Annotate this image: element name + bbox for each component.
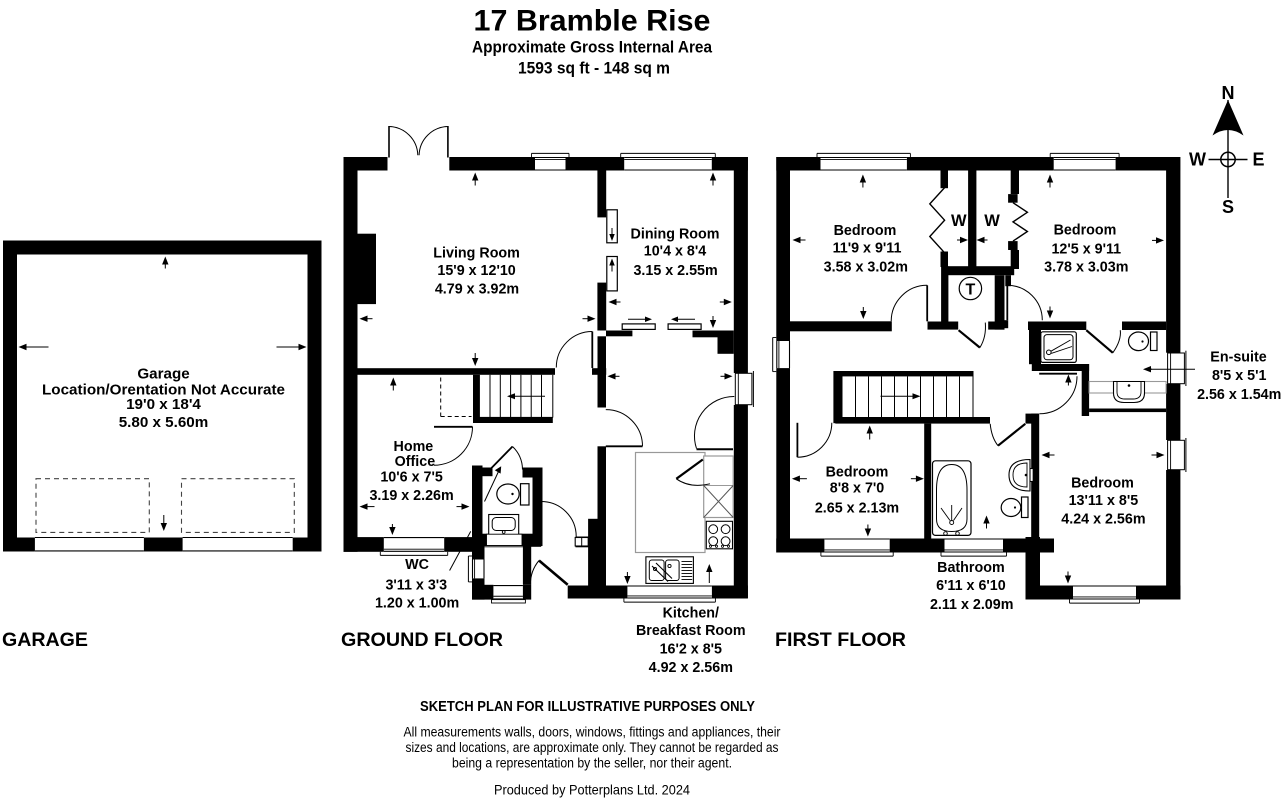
svg-text:GROUND FLOOR: GROUND FLOOR xyxy=(341,629,503,651)
svg-text:GARAGE: GARAGE xyxy=(2,629,88,651)
svg-text:Living Room: Living Room xyxy=(433,246,520,262)
svg-text:T: T xyxy=(966,282,976,299)
svg-text:W: W xyxy=(1189,150,1206,170)
svg-text:Breakfast Room: Breakfast Room xyxy=(636,623,746,639)
svg-text:4.79 x 3.92m: 4.79 x 3.92m xyxy=(435,282,519,298)
svg-text:17 Bramble Rise: 17 Bramble Rise xyxy=(474,5,711,38)
svg-text:3.15 x 2.55m: 3.15 x 2.55m xyxy=(633,263,717,279)
svg-text:19'0 x 18'4: 19'0 x 18'4 xyxy=(126,396,201,413)
svg-text:Bedroom: Bedroom xyxy=(1054,222,1117,238)
svg-text:S: S xyxy=(1222,197,1234,217)
svg-text:10'6 x 7'5: 10'6 x 7'5 xyxy=(380,470,442,486)
svg-text:sizes and locations, are appro: sizes and locations, are approximate onl… xyxy=(406,740,779,755)
svg-text:Dining Room: Dining Room xyxy=(631,226,720,242)
svg-text:15'9 x 12'10: 15'9 x 12'10 xyxy=(437,263,515,279)
svg-text:W: W xyxy=(951,212,967,230)
svg-text:1.20 x 1.00m: 1.20 x 1.00m xyxy=(375,595,459,611)
svg-text:WC: WC xyxy=(405,557,429,573)
svg-text:W: W xyxy=(984,212,1000,230)
svg-text:3.58 x 3.02m: 3.58 x 3.02m xyxy=(824,259,908,275)
svg-text:3'11 x 3'3: 3'11 x 3'3 xyxy=(385,578,447,594)
svg-text:4.24 x 2.56m: 4.24 x 2.56m xyxy=(1061,512,1145,528)
svg-text:Garage: Garage xyxy=(137,366,189,383)
svg-text:All measurements walls, doors,: All measurements walls, doors, windows, … xyxy=(404,724,781,739)
svg-text:1593 sq ft - 148 sq m: 1593 sq ft - 148 sq m xyxy=(518,60,670,78)
svg-text:Produced by Potterplans Ltd. 2: Produced by Potterplans Ltd. 2024 xyxy=(494,782,690,798)
svg-text:Home: Home xyxy=(394,439,434,455)
svg-text:8'5 x 5'1: 8'5 x 5'1 xyxy=(1212,368,1267,384)
svg-text:3.19 x 2.26m: 3.19 x 2.26m xyxy=(369,488,453,504)
svg-text:SKETCH PLAN FOR ILLUSTRATIVE P: SKETCH PLAN FOR ILLUSTRATIVE PURPOSES ON… xyxy=(420,699,755,715)
svg-text:4.92 x 2.56m: 4.92 x 2.56m xyxy=(649,660,733,676)
svg-text:being a representation by the: being a representation by the seller, no… xyxy=(452,755,732,770)
svg-text:2.56 x 1.54m: 2.56 x 1.54m xyxy=(1197,387,1281,403)
svg-text:FIRST FLOOR: FIRST FLOOR xyxy=(775,629,906,651)
svg-text:Bedroom: Bedroom xyxy=(826,464,889,480)
svg-text:11'9 x 9'11: 11'9 x 9'11 xyxy=(833,241,902,257)
svg-text:8'8 x 7'0: 8'8 x 7'0 xyxy=(830,481,885,497)
svg-text:13'11 x 8'5: 13'11 x 8'5 xyxy=(1069,493,1139,509)
svg-text:En-suite: En-suite xyxy=(1210,350,1266,366)
svg-text:2.11 x 2.09m: 2.11 x 2.09m xyxy=(930,597,1013,613)
svg-text:Bedroom: Bedroom xyxy=(1071,476,1134,492)
svg-text:Approximate Gross Internal Are: Approximate Gross Internal Area xyxy=(472,39,713,57)
svg-text:3.78 x 3.03m: 3.78 x 3.03m xyxy=(1044,260,1128,276)
svg-text:Bathroom: Bathroom xyxy=(937,560,1005,576)
svg-text:Bedroom: Bedroom xyxy=(834,223,897,239)
svg-text:16'2 x 8'5: 16'2 x 8'5 xyxy=(660,642,722,658)
svg-text:12'5 x 9'11: 12'5 x 9'11 xyxy=(1051,242,1121,258)
svg-text:6'11 x 6'10: 6'11 x 6'10 xyxy=(936,578,1006,594)
svg-text:2.65 x 2.13m: 2.65 x 2.13m xyxy=(815,501,899,517)
svg-text:5.80 x 5.60m: 5.80 x 5.60m xyxy=(119,414,209,431)
svg-text:E: E xyxy=(1252,150,1264,170)
svg-text:Kitchen/: Kitchen/ xyxy=(663,606,719,622)
svg-text:10'4 x 8'4: 10'4 x 8'4 xyxy=(644,243,706,259)
svg-text:Office: Office xyxy=(395,454,436,470)
